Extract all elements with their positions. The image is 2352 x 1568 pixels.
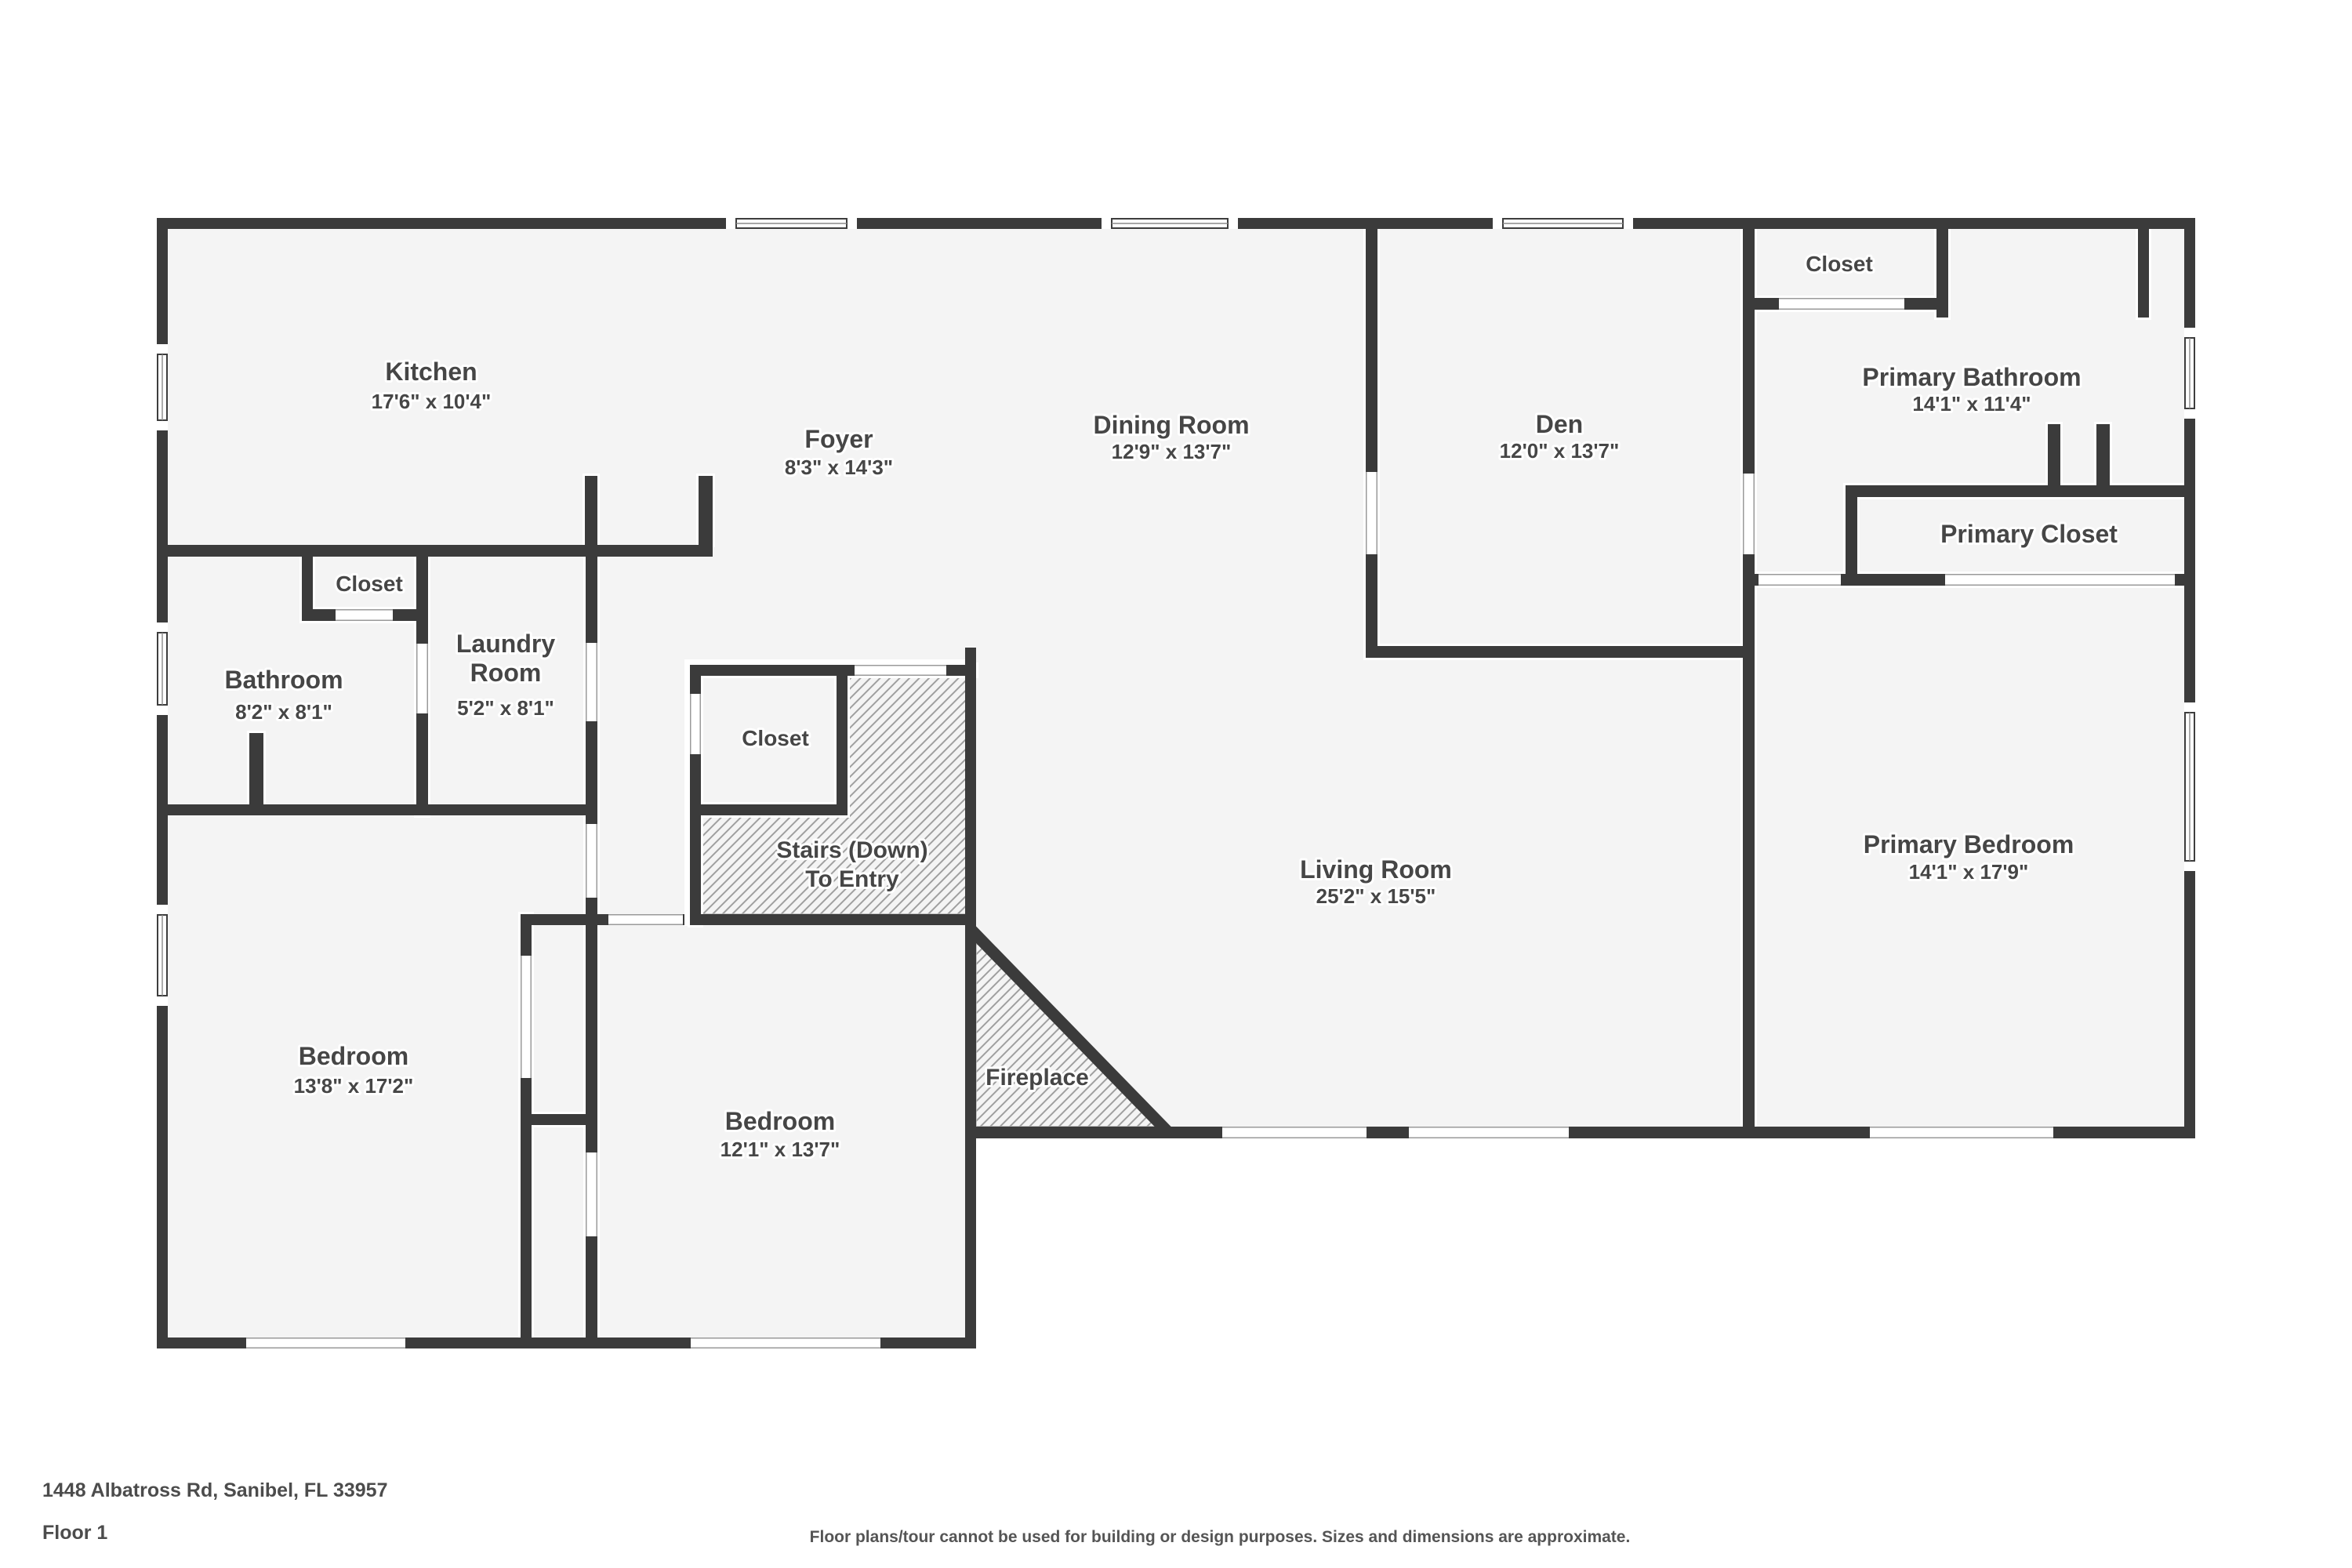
svg-text:Den: Den xyxy=(1536,410,1583,438)
svg-text:To Entry: To Entry xyxy=(805,866,899,892)
svg-text:Stairs (Down): Stairs (Down) xyxy=(776,837,927,863)
svg-text:Floor plans/tour cannot be use: Floor plans/tour cannot be used for buil… xyxy=(810,1528,1631,1546)
svg-text:Bedroom: Bedroom xyxy=(299,1042,408,1070)
svg-text:12'0" x 13'7": 12'0" x 13'7" xyxy=(1500,439,1620,463)
svg-text:5'2" x 8'1": 5'2" x 8'1" xyxy=(457,696,554,720)
svg-text:12'9" x 13'7": 12'9" x 13'7" xyxy=(1112,440,1232,463)
svg-text:Room: Room xyxy=(470,659,542,687)
svg-text:Closet: Closet xyxy=(336,572,403,596)
svg-text:Foyer: Foyer xyxy=(804,425,873,453)
svg-text:8'2" x 8'1": 8'2" x 8'1" xyxy=(235,700,332,724)
svg-text:Floor 1: Floor 1 xyxy=(42,1522,107,1544)
svg-text:Primary Closet: Primary Closet xyxy=(1940,520,2118,548)
svg-text:Bedroom: Bedroom xyxy=(725,1107,835,1135)
svg-text:1448 Albatross Rd, Sanibel, FL: 1448 Albatross Rd, Sanibel, FL 33957 xyxy=(42,1479,387,1501)
svg-text:Closet: Closet xyxy=(742,726,809,750)
svg-text:Closet: Closet xyxy=(1806,252,1873,276)
svg-text:Fireplace: Fireplace xyxy=(985,1065,1089,1091)
svg-text:17'6" x 10'4": 17'6" x 10'4" xyxy=(372,390,492,413)
svg-text:Primary Bedroom: Primary Bedroom xyxy=(1864,830,2074,858)
svg-text:12'1" x 13'7": 12'1" x 13'7" xyxy=(720,1138,840,1161)
svg-text:Primary Bathroom: Primary Bathroom xyxy=(1862,363,2081,391)
svg-text:14'1" x 11'4": 14'1" x 11'4" xyxy=(1912,392,2031,416)
svg-text:Bathroom: Bathroom xyxy=(224,666,343,694)
svg-text:Living Room: Living Room xyxy=(1300,855,1452,884)
svg-text:14'1" x 17'9": 14'1" x 17'9" xyxy=(1909,860,2029,884)
svg-text:Laundry: Laundry xyxy=(456,630,555,658)
svg-text:Kitchen: Kitchen xyxy=(385,358,477,386)
svg-text:25'2" x 15'5": 25'2" x 15'5" xyxy=(1316,884,1436,908)
svg-text:8'3" x 14'3": 8'3" x 14'3" xyxy=(785,456,893,479)
svg-text:13'8" x 17'2": 13'8" x 17'2" xyxy=(294,1074,414,1098)
svg-text:Dining Room: Dining Room xyxy=(1093,411,1249,439)
